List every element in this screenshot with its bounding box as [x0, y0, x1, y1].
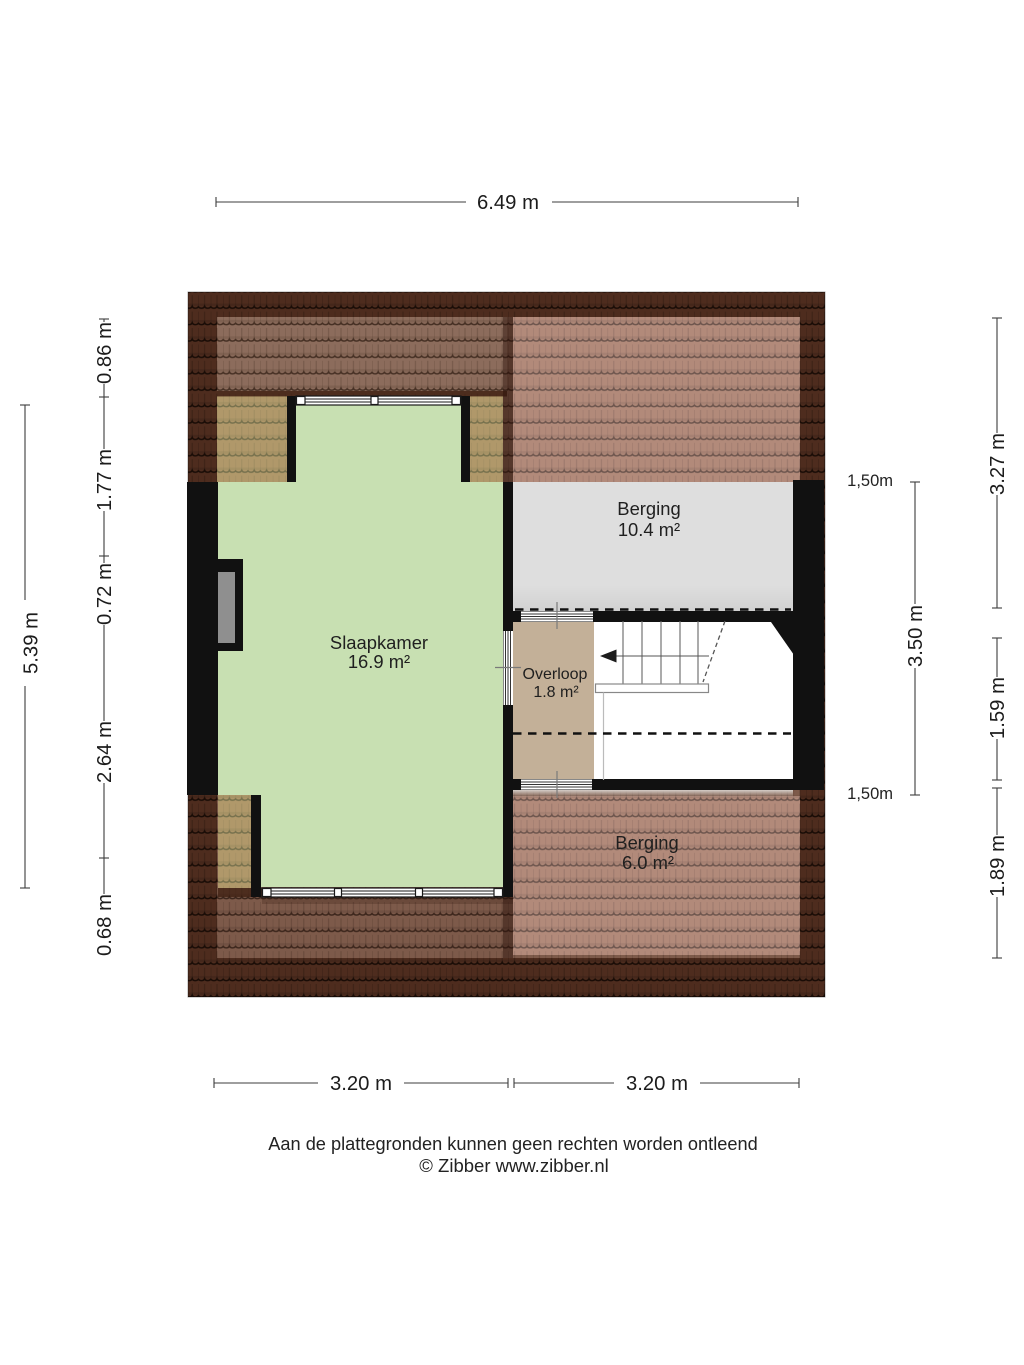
- svg-text:3.20 m: 3.20 m: [330, 1073, 392, 1095]
- svg-text:5.39 m: 5.39 m: [20, 612, 42, 674]
- svg-text:Berging: Berging: [617, 498, 680, 519]
- svg-text:6.0 m²: 6.0 m²: [622, 852, 674, 873]
- svg-text:3.50 m: 3.50 m: [905, 605, 927, 667]
- svg-text:1.77 m: 1.77 m: [94, 449, 116, 511]
- svg-text:1,50m: 1,50m: [847, 472, 893, 490]
- svg-text:0.86 m: 0.86 m: [94, 322, 116, 384]
- svg-text:10.4 m²: 10.4 m²: [618, 519, 680, 540]
- svg-text:0.68 m: 0.68 m: [94, 894, 116, 956]
- svg-text:1.89 m: 1.89 m: [987, 835, 1009, 897]
- svg-text:3.20 m: 3.20 m: [626, 1073, 688, 1095]
- svg-text:Berging: Berging: [615, 832, 678, 853]
- svg-text:0.72 m: 0.72 m: [94, 563, 116, 625]
- svg-text:Slaapkamer: Slaapkamer: [330, 632, 428, 653]
- svg-text:1.59 m: 1.59 m: [987, 677, 1009, 739]
- svg-text:1,50m: 1,50m: [847, 785, 893, 803]
- svg-text:1.8 m²: 1.8 m²: [533, 684, 579, 701]
- svg-text:16.9 m²: 16.9 m²: [348, 651, 410, 672]
- svg-text:2.64 m: 2.64 m: [94, 721, 116, 783]
- svg-text:© Zibber www.zibber.nl: © Zibber www.zibber.nl: [419, 1155, 608, 1176]
- svg-text:6.49 m: 6.49 m: [477, 192, 539, 214]
- svg-text:Overloop: Overloop: [523, 666, 588, 683]
- svg-text:3.27 m: 3.27 m: [987, 433, 1009, 495]
- svg-text:Aan de plattegronden kunnen ge: Aan de plattegronden kunnen geen rechten…: [268, 1134, 757, 1154]
